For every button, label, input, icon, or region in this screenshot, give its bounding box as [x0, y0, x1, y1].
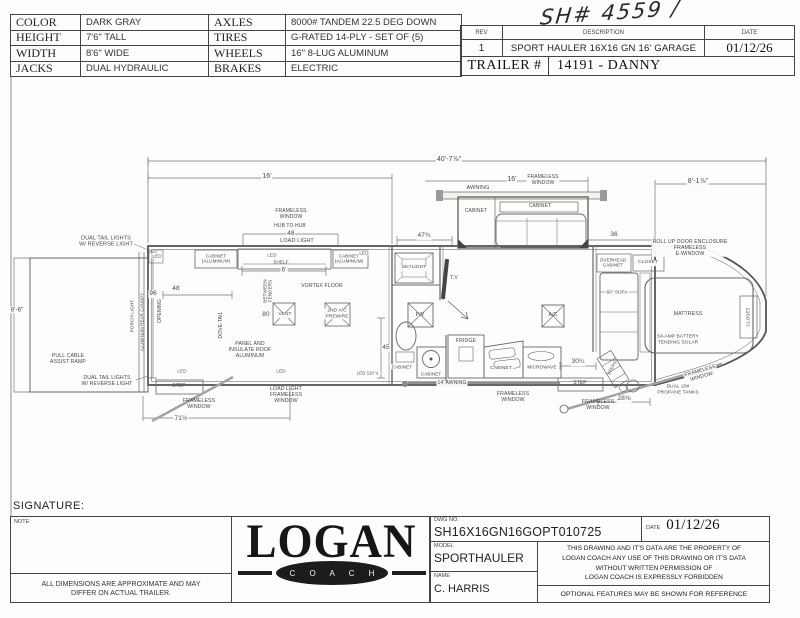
dim-shelf-length: 6' — [281, 267, 288, 274]
spec-value-jacks: DUAL HYDRAULIC — [81, 62, 209, 77]
label-led-4: LED — [176, 368, 187, 373]
dimensions-disclaimer: ALL DIMENSIONS ARE APPROXIMATE AND MAY D… — [10, 573, 232, 604]
spec-row-height: HEIGHT 7'6" TALL TIRES G-RATED 14-PLY - … — [11, 31, 461, 47]
label-cabinet-sink: CABINET — [420, 371, 443, 376]
label-cabinet-kitchen: CABINET — [489, 366, 513, 372]
spec-label-width: WIDTH — [11, 46, 81, 61]
label-power-vent: P/V — [416, 312, 425, 318]
revision-header-row: REV DESCRIPTION DATE — [461, 26, 794, 40]
dim-dovetail-length: 71½ — [174, 415, 189, 423]
label-vortex-floor: VORTEX FLOOR — [301, 283, 343, 289]
name-cell: NAME C. HARRIS — [430, 572, 538, 603]
dwg-number-cell: DWG NO. SH16X16GN16GOPT010725 — [430, 516, 642, 542]
spec-row-jacks: JACKS DUAL HYDRAULIC BRAKES ELECTRIC — [11, 62, 461, 77]
label-frameless-window-mid: FRAMELESS WINDOW — [497, 391, 529, 403]
trailer-number-row: TRAILER # 14191 - DANNY — [461, 57, 794, 75]
date-value: 01/12/26 — [666, 517, 719, 534]
revision-data-row: 1 SPORT HAULER 16X16 GN 16' GARAGE 01/12… — [461, 40, 794, 57]
spec-value-brakes: ELECTRIC — [286, 62, 461, 77]
label-shelf: SHELF — [273, 259, 288, 264]
label-sofa-60: 60" SOFA — [605, 289, 628, 294]
label-led-110v: LED 110 V. — [356, 370, 381, 375]
dwg-number-label: DWG NO. — [434, 517, 641, 523]
label-frameless-window-slide: FRAMELESS WINDOW — [526, 175, 559, 187]
label-closet-top: CLOSET — [637, 260, 659, 266]
label-led-2: LED — [266, 252, 277, 257]
description-header: DESCRIPTION — [503, 26, 705, 39]
label-battery-solar: 50-AMP BATTERY TENDING SOLAR — [657, 334, 699, 345]
label-frameless-window-hub: FRAMELESS WINDOW — [275, 209, 306, 221]
logo-bar-left — [238, 571, 272, 575]
label-step-right: STEP — [573, 381, 586, 387]
spec-row-width: WIDTH 8'6" WIDE WHEELS 16" 8-LUG ALUMINU… — [11, 46, 461, 62]
dim-slide-window: 16' — [506, 176, 517, 184]
name-value: C. HARRIS — [434, 583, 490, 595]
model-cell: MODEL SPORTHAULER — [430, 542, 538, 572]
dwg-number-value: SH16X16GN16GOPT010725 — [434, 525, 602, 539]
optional-notice: OPTIONAL FEATURES MAY BE SHOWN FOR REFER… — [538, 586, 770, 603]
revision-table: REV DESCRIPTION DATE 1 SPORT HAULER 16X1… — [460, 25, 795, 76]
signature-label: SIGNATURE: — [13, 500, 84, 512]
rev-number: 1 — [461, 40, 503, 56]
label-pull-cable-assist-ramp: PULL CABLE ASSIST RAMP — [50, 353, 86, 365]
label-between-fenders: BETWEEN FENDERS — [263, 279, 274, 302]
spec-label-axles: AXLES — [209, 15, 286, 30]
dim-vent: 80 — [261, 311, 270, 319]
legal-notice: THIS DRAWING AND IT'S DATA ARE THE PROPE… — [538, 542, 770, 586]
spec-label-brakes: BRAKES — [209, 62, 286, 77]
label-step-left: STEP — [172, 384, 185, 390]
label-awning-slide: AWNING — [465, 185, 490, 191]
label-cabinet-slide-top: CABINET — [528, 204, 552, 210]
dim-47: 47¾ — [417, 232, 432, 240]
label-microwave: MICROWAVE — [526, 364, 557, 369]
label-opening: OPENING — [158, 299, 164, 323]
label-frameless-window-left: FRAMELESS WINDOW — [183, 398, 215, 410]
label-frameless-window-door: FRAMELESS WINDOW — [582, 399, 614, 411]
dim-ramp-height: 8'-6" — [10, 306, 25, 313]
label-skylight: SKYLIGHT — [401, 265, 428, 271]
label-hub-to-hub: HUB TO HUB — [274, 224, 306, 230]
trailer-number-value: 14191 - DANNY — [549, 57, 794, 75]
dim-opening-width: 48 — [171, 285, 180, 293]
trailer-drawing-sheet: { "spec": { "rows": [ {"c1":"COLOR","v1"… — [0, 0, 800, 618]
spec-label-color: COLOR — [11, 15, 81, 30]
dim-hub-to-hub: 48 — [286, 230, 295, 238]
label-cabinet-aluminum-1: CABINET (ALUMINUM) — [201, 254, 232, 265]
label-led-1: LED — [151, 253, 162, 258]
label-overhead-cabinet: OVERHEAD CABINET — [599, 258, 628, 269]
dim-overall-length: 40'-7⅞" — [436, 156, 462, 164]
rev-description: SPORT HAULER 16X16 GN 16' GARAGE — [503, 40, 705, 56]
note-label: NOTE: — [14, 519, 31, 525]
spec-table: COLOR DARK GRAY AXLES 8000# TANDEM 22.5 … — [10, 14, 462, 77]
rev-header: REV — [461, 26, 503, 39]
rev-date: 01/12/26 — [705, 40, 794, 56]
spec-label-height: HEIGHT — [11, 31, 81, 46]
label-panel-insulate-roof: PANEL AND INSULATE ROOF ALUMINUM — [229, 341, 272, 359]
label-dove-tail: DOVE-TAIL — [219, 312, 225, 339]
label-load-light-bottom: LOAD LIGHT FRAMELESS WINDOW — [270, 386, 302, 404]
logo-bar-right — [392, 571, 426, 575]
spec-label-jacks: JACKS — [11, 62, 81, 77]
label-2nd-ac-prewire: 2ND A/C PREWIRE — [324, 308, 349, 319]
label-closet-right: CLOSET — [745, 308, 750, 327]
label-dual-tail-lights-top: DUAL TAIL LIGHTS W/ REVERSE LIGHT — [79, 236, 133, 249]
label-porch-light: PORCH LIGHT — [129, 300, 134, 333]
model-value: SPORTHAULER — [434, 551, 524, 565]
label-load-light-top: LOAD LIGHT — [279, 238, 315, 244]
dim-45: 45 — [381, 344, 390, 352]
dim-nose-length: 8'-1⅞" — [687, 178, 709, 186]
label-aluminum-rear-canopy: ALUMINUM REAR CANOPY — [139, 293, 144, 352]
date-label: DATE — [646, 525, 660, 531]
label-dual-tail-lights-bottom: DUAL TAIL LIGHTS W/ REVERSE LIGHT — [82, 375, 133, 387]
label-ac: A/C — [549, 313, 558, 319]
label-steps: STEPS — [606, 360, 618, 376]
label-awning-14: 14' AWNING — [437, 381, 468, 387]
label-cabinet-bath: CABINET — [391, 364, 414, 369]
spec-value-color: DARK GRAY — [81, 15, 209, 30]
spec-row-color: COLOR DARK GRAY AXLES 8000# TANDEM 22.5 … — [11, 15, 461, 31]
model-label: MODEL — [434, 543, 537, 549]
trailer-number-label: TRAILER # — [461, 57, 549, 75]
dim-28: 28⅛ — [617, 395, 632, 403]
label-vent: VENT — [277, 312, 292, 318]
spec-value-wheels: 16" 8-LUG ALUMINUM — [286, 46, 461, 61]
date-cell: DATE 01/12/26 — [642, 516, 770, 542]
label-tv: T.V — [450, 276, 458, 282]
dim-garage-length: 16' — [261, 173, 272, 181]
spec-value-tires: G-RATED 14-PLY - SET OF (5) — [286, 31, 461, 46]
spec-label-wheels: WHEELS — [209, 46, 286, 61]
dim-30: 30¼ — [571, 358, 586, 366]
date-header: DATE — [705, 26, 794, 39]
name-label: NAME — [434, 573, 537, 579]
coach-badge: C O A C H — [276, 561, 388, 585]
dim-opening-height: 96 — [148, 290, 157, 298]
label-rollup-door: ROLL UP DOOR ENCLOSURE FRAMELESS E-WINDO… — [652, 239, 729, 257]
label-frameless-window-nose: FRAMELESS WINDOW — [683, 363, 719, 384]
label-propane-tanks: DUAL 20# PROPANE TANKS — [657, 384, 698, 395]
label-mattress: MATTRESS — [674, 311, 703, 317]
spec-label-tires: TIRES — [209, 31, 286, 46]
label-fridge: FRIDGE — [456, 338, 476, 344]
label-led-3: LED — [358, 250, 369, 255]
spec-value-height: 7'6" TALL — [81, 31, 209, 46]
spec-value-width: 8'6" WIDE — [81, 46, 209, 61]
label-cabinet-slide: CABINET — [464, 209, 488, 215]
spec-value-axles: 8000# TANDEM 22.5 DEG DOWN — [286, 15, 461, 30]
label-led-5: LED — [275, 368, 286, 373]
dim-36: 36 — [609, 231, 618, 239]
